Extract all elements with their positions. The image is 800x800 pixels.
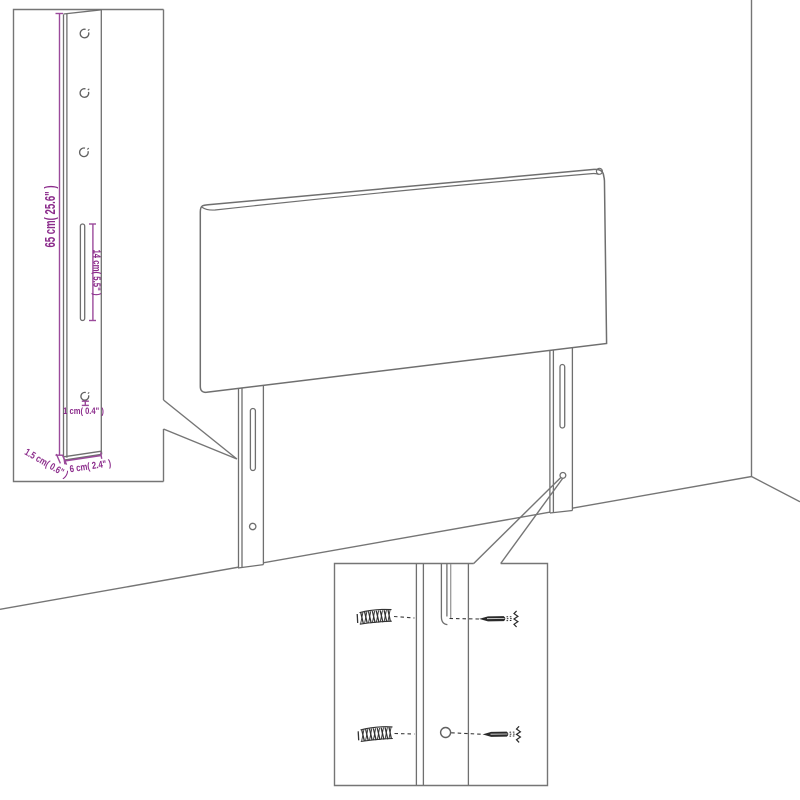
svg-text:65 cm( 25.6" ): 65 cm( 25.6" ) — [42, 185, 59, 247]
svg-text:1 cm( 0.4" ): 1 cm( 0.4" ) — [63, 405, 104, 416]
svg-text:14 cm( 5.5" ): 14 cm( 5.5" ) — [91, 249, 102, 295]
